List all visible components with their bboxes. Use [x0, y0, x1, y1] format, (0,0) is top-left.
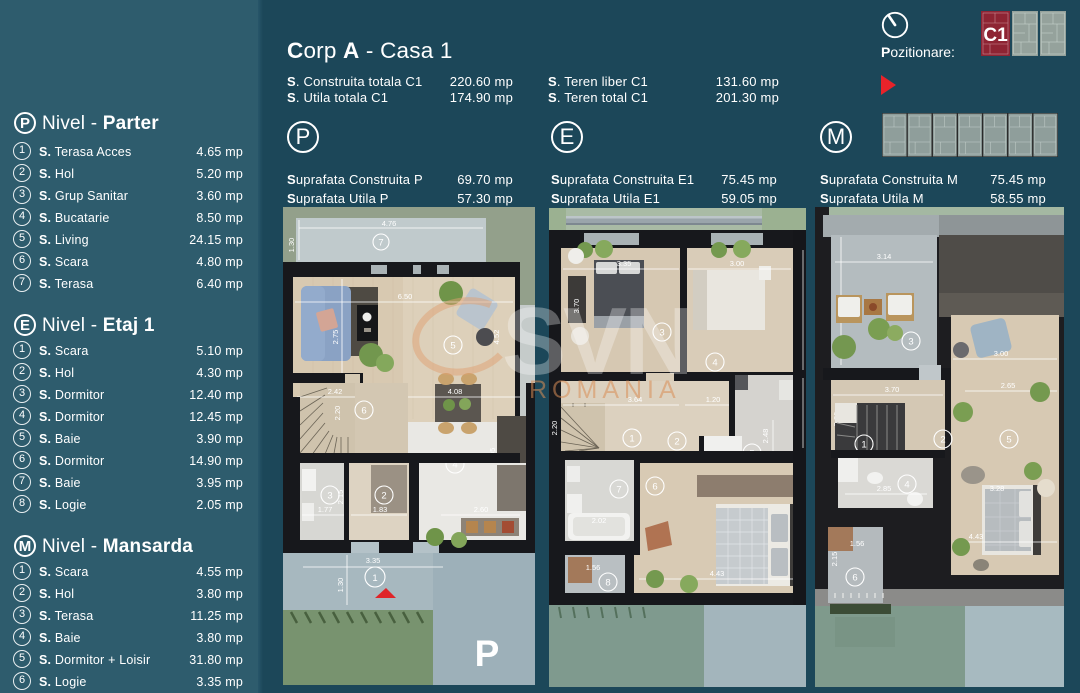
- svg-text:1.83: 1.83: [373, 505, 388, 514]
- svg-text:2.02: 2.02: [592, 516, 607, 525]
- svg-text:3.00: 3.00: [730, 259, 745, 268]
- svg-text:1: 1: [372, 573, 377, 584]
- svg-text:3.00: 3.00: [994, 349, 1009, 358]
- svg-text:3.28: 3.28: [990, 484, 1005, 493]
- svg-text:3.70: 3.70: [572, 299, 581, 314]
- svg-text:1.56: 1.56: [850, 539, 865, 548]
- svg-text:1: 1: [861, 440, 866, 451]
- svg-text:2: 2: [940, 435, 945, 446]
- svg-text:3.14: 3.14: [877, 252, 892, 261]
- svg-text:4.08: 4.08: [448, 387, 463, 396]
- svg-text:1.77: 1.77: [318, 505, 333, 514]
- svg-text:7: 7: [378, 238, 383, 249]
- svg-text:2: 2: [381, 491, 386, 502]
- svg-text:2: 2: [674, 437, 679, 448]
- svg-text:1.30: 1.30: [287, 238, 296, 253]
- svg-text:2.75: 2.75: [331, 330, 340, 345]
- svg-text:1.20: 1.20: [706, 395, 721, 404]
- svg-text:P: P: [475, 633, 500, 674]
- svg-text:2.65: 2.65: [1001, 381, 1016, 390]
- svg-text:2.15: 2.15: [830, 552, 839, 567]
- svg-text:3.64: 3.64: [628, 395, 643, 404]
- svg-text:6.50: 6.50: [398, 292, 413, 301]
- svg-text:1.56: 1.56: [586, 563, 601, 572]
- svg-text:C1: C1: [983, 25, 1008, 46]
- svg-text:2.42: 2.42: [328, 387, 343, 396]
- svg-text:7: 7: [616, 485, 621, 496]
- svg-text:2.85: 2.85: [877, 484, 892, 493]
- svg-text:3.35: 3.35: [366, 556, 381, 565]
- svg-text:3.70: 3.70: [885, 385, 900, 394]
- svg-text:6: 6: [361, 406, 366, 417]
- svg-text:8: 8: [605, 578, 610, 589]
- svg-text:6: 6: [652, 482, 657, 493]
- svg-text:2.20: 2.20: [550, 421, 559, 436]
- svg-text:4.76: 4.76: [382, 219, 397, 228]
- svg-text:5: 5: [1006, 435, 1011, 446]
- svg-text:4.52: 4.52: [492, 330, 501, 345]
- svg-text:3.35: 3.35: [617, 259, 632, 268]
- svg-text:2.60: 2.60: [474, 505, 489, 514]
- svg-text:4: 4: [904, 480, 909, 491]
- svg-text:2.20: 2.20: [333, 406, 342, 421]
- svg-text:4.43: 4.43: [710, 569, 725, 578]
- svg-text:2.48: 2.48: [761, 429, 770, 444]
- svg-text:3: 3: [659, 328, 664, 339]
- svg-text:1: 1: [629, 434, 634, 445]
- svg-text:3: 3: [908, 337, 913, 348]
- svg-text:3: 3: [327, 491, 332, 502]
- svg-text:1.30: 1.30: [336, 578, 345, 593]
- svg-text:5: 5: [450, 341, 455, 352]
- svg-text:2.15: 2.15: [336, 490, 345, 505]
- svg-text:6: 6: [852, 573, 857, 584]
- svg-text:4.43: 4.43: [969, 532, 984, 541]
- svg-text:4: 4: [712, 358, 717, 369]
